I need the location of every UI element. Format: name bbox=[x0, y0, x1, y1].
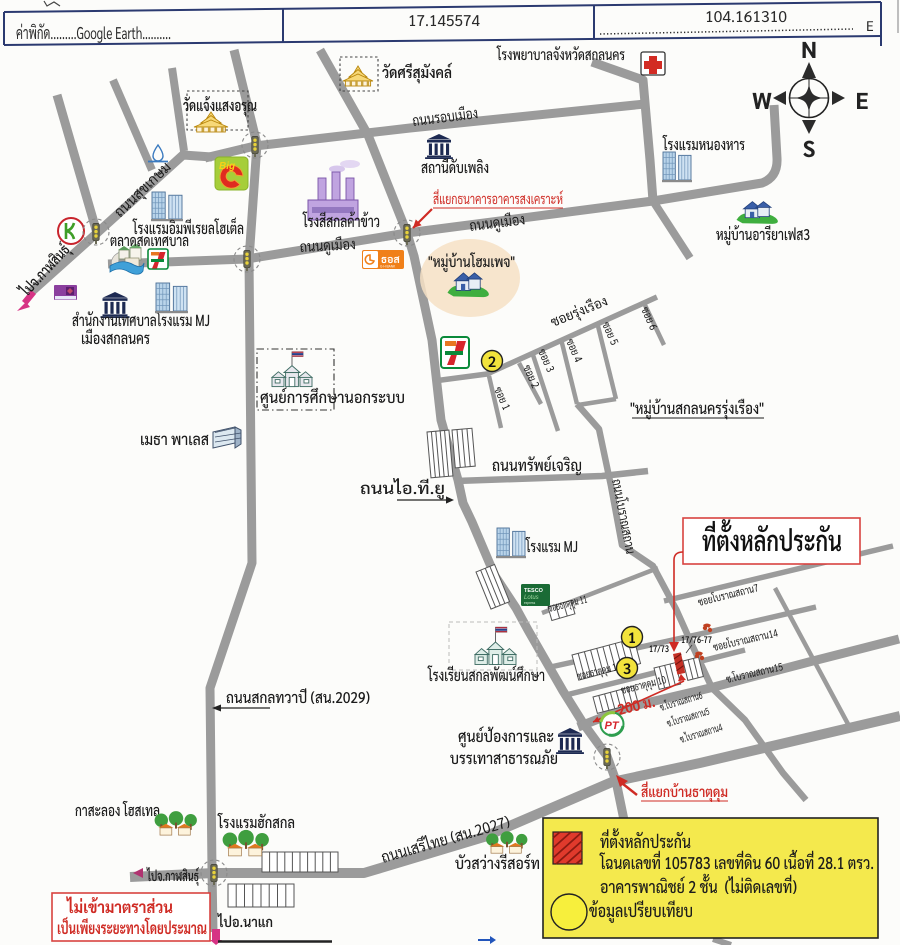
svg-text:PT: PT bbox=[605, 720, 620, 732]
svg-text:G H BANK: G H BANK bbox=[380, 265, 396, 269]
svg-text:Big: Big bbox=[219, 161, 235, 172]
svg-text:TESCO: TESCO bbox=[524, 588, 544, 594]
svg-text:express: express bbox=[524, 601, 536, 605]
